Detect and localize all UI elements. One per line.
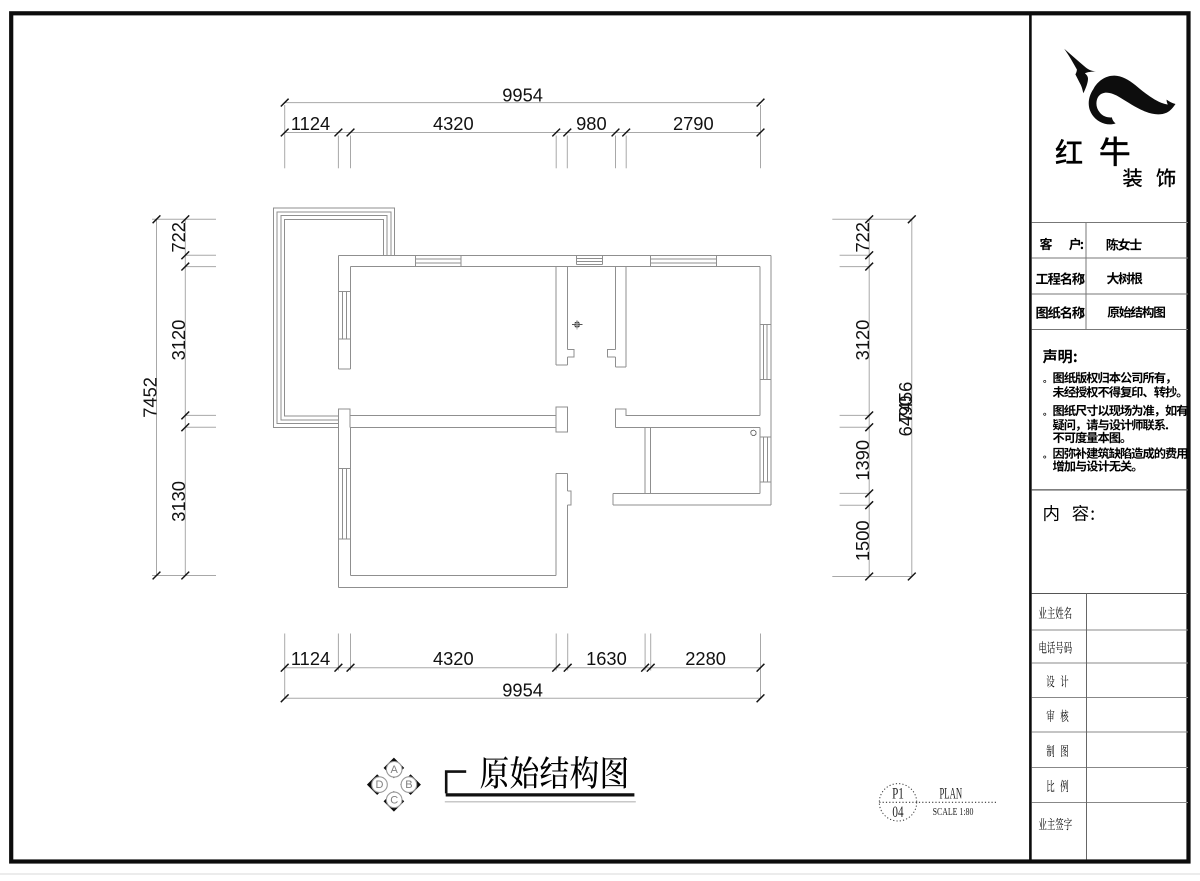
svg-text:1630: 1630 <box>586 648 627 669</box>
svg-text:9954: 9954 <box>502 84 543 105</box>
svg-text:1390: 1390 <box>852 440 873 481</box>
svg-text:04: 04 <box>892 803 903 820</box>
svg-text:4320: 4320 <box>433 113 474 134</box>
svg-text:3130: 3130 <box>168 481 189 522</box>
svg-text:C: C <box>390 795 398 807</box>
svg-text:3120: 3120 <box>852 320 873 361</box>
svg-text:1124: 1124 <box>291 113 330 134</box>
svg-text:6490: 6490 <box>895 396 916 437</box>
svg-text:P1: P1 <box>892 785 904 802</box>
svg-text:7452: 7452 <box>139 377 160 418</box>
svg-text:B: B <box>405 779 412 791</box>
svg-text:A: A <box>391 764 399 776</box>
svg-text:SCALE 1:80: SCALE 1:80 <box>933 807 974 818</box>
svg-text:2790: 2790 <box>673 113 714 134</box>
svg-text:9954: 9954 <box>502 679 543 700</box>
svg-text:3120: 3120 <box>168 320 189 361</box>
svg-text:D: D <box>376 779 384 791</box>
svg-text:980: 980 <box>576 113 607 134</box>
svg-text:PLAN: PLAN <box>939 785 962 802</box>
svg-text:722: 722 <box>852 222 873 253</box>
svg-text:1500: 1500 <box>852 520 873 561</box>
svg-text:722: 722 <box>168 222 189 253</box>
svg-text:1124: 1124 <box>291 648 330 669</box>
svg-text:2280: 2280 <box>685 648 726 669</box>
svg-text:4320: 4320 <box>433 648 474 669</box>
